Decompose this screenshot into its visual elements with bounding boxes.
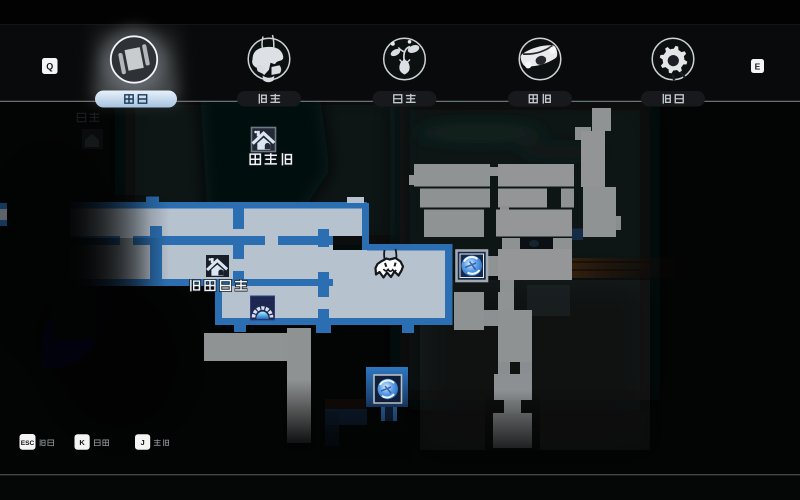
- svg-text:J: J: [141, 438, 145, 447]
- svg-text:K: K: [79, 438, 85, 447]
- svg-text:E: E: [755, 61, 761, 71]
- svg-text:Q: Q: [46, 62, 53, 72]
- svg-text:ESC: ESC: [21, 440, 35, 447]
